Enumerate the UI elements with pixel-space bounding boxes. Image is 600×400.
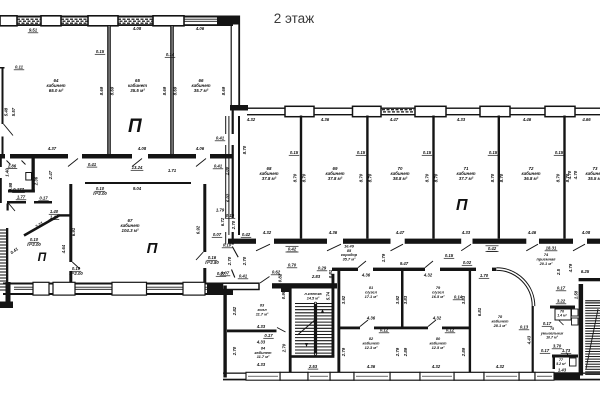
svg-text:8.70: 8.70 [359, 173, 364, 182]
svg-text:6.92: 6.92 [196, 225, 201, 234]
svg-text:11.7 м²: 11.7 м² [256, 312, 269, 317]
svg-text:1.40: 1.40 [50, 214, 59, 219]
svg-text:0.07: 0.07 [217, 271, 226, 276]
svg-text:4.37: 4.37 [47, 146, 57, 151]
svg-text:0.15: 0.15 [290, 150, 299, 155]
svg-text:0.14: 0.14 [166, 52, 175, 57]
svg-text:0.15: 0.15 [489, 150, 498, 155]
svg-text:2.70: 2.70 [232, 346, 237, 356]
svg-text:20.1 м²: 20.1 м² [539, 261, 554, 266]
svg-text:2.82: 2.82 [232, 306, 237, 316]
svg-text:11.7 м²: 11.7 м² [257, 354, 270, 359]
svg-text:0.42: 0.42 [288, 247, 297, 252]
svg-text:1.58: 1.58 [574, 290, 579, 299]
svg-text:2.36: 2.36 [34, 176, 39, 186]
svg-text:П: П [38, 250, 47, 264]
svg-text:4.32: 4.32 [246, 117, 256, 122]
svg-text:h=2.00: h=2.00 [69, 271, 83, 276]
svg-text:П: П [147, 240, 159, 257]
svg-text:2.79: 2.79 [341, 347, 346, 357]
svg-text:6.72: 6.72 [220, 217, 225, 226]
svg-text:3.22: 3.22 [557, 299, 566, 304]
svg-text:1.43: 1.43 [558, 368, 567, 373]
svg-text:0.15: 0.15 [555, 150, 564, 155]
svg-text:h=2.00: h=2.00 [93, 191, 107, 196]
svg-text:0.41: 0.41 [214, 164, 223, 169]
svg-text:17.1 м²: 17.1 м² [365, 294, 379, 299]
svg-text:35.5 м²: 35.5 м² [130, 88, 145, 93]
svg-text:0.11: 0.11 [15, 65, 24, 70]
svg-text:8.70: 8.70 [490, 173, 495, 182]
svg-text:18.31: 18.31 [546, 246, 557, 251]
svg-text:1.77: 1.77 [17, 195, 26, 200]
svg-text:0.17: 0.17 [541, 348, 550, 353]
svg-text:37.8 м²: 37.8 м² [262, 176, 277, 181]
svg-text:h=2.80: h=2.80 [205, 260, 219, 265]
svg-text:4.66: 4.66 [581, 117, 591, 122]
svg-text:1.73: 1.73 [562, 348, 571, 353]
svg-text:0.15: 0.15 [357, 150, 366, 155]
svg-text:3.83: 3.83 [403, 295, 408, 304]
svg-text:8.69: 8.69 [173, 86, 178, 95]
svg-text:9.47: 9.47 [400, 261, 409, 266]
svg-text:4.32: 4.32 [432, 316, 442, 321]
svg-text:2 этаж: 2 этаж [274, 11, 314, 26]
svg-text:8.70: 8.70 [302, 173, 307, 182]
svg-text:0.12: 0.12 [446, 328, 455, 333]
svg-text:4.36: 4.36 [328, 230, 338, 235]
svg-text:4.43: 4.43 [527, 335, 532, 345]
svg-text:0.15: 0.15 [96, 49, 105, 54]
svg-text:28.1 м²: 28.1 м² [493, 323, 508, 328]
svg-text:0.177: 0.177 [13, 187, 24, 192]
svg-text:0.13: 0.13 [520, 325, 529, 330]
svg-text:1.71: 1.71 [168, 168, 177, 173]
svg-text:4.06: 4.06 [195, 26, 205, 31]
svg-text:4.33: 4.33 [461, 230, 471, 235]
svg-text:4.33: 4.33 [256, 324, 266, 329]
svg-text:38.8 м²: 38.8 м² [393, 176, 408, 181]
svg-text:4.79: 4.79 [568, 263, 573, 273]
svg-text:0.17: 0.17 [39, 196, 48, 201]
svg-text:14.5 м²: 14.5 м² [307, 296, 320, 300]
svg-text:1.79: 1.79 [381, 253, 386, 262]
svg-text:П: П [456, 197, 468, 214]
svg-text:4.33: 4.33 [256, 340, 266, 345]
svg-text:5.57: 5.57 [11, 107, 16, 116]
svg-text:8.69: 8.69 [162, 86, 167, 95]
svg-text:0.17: 0.17 [557, 286, 566, 291]
svg-text:0.29: 0.29 [318, 266, 327, 271]
svg-text:37.7 м²: 37.7 м² [459, 176, 474, 181]
svg-text:0.07: 0.07 [213, 232, 222, 237]
svg-text:5.74: 5.74 [326, 291, 331, 300]
svg-text:2.70: 2.70 [282, 343, 287, 353]
svg-text:0.41: 0.41 [216, 136, 225, 141]
svg-text:4.46: 4.46 [522, 117, 532, 122]
svg-text:0.42: 0.42 [242, 232, 251, 237]
svg-text:2.89: 2.89 [461, 347, 466, 357]
svg-text:0.90: 0.90 [281, 290, 286, 299]
svg-text:1.40: 1.40 [50, 209, 59, 214]
svg-text:4.33: 4.33 [456, 117, 466, 122]
svg-text:4.32: 4.32 [495, 364, 505, 369]
svg-text:1.79: 1.79 [216, 208, 225, 213]
svg-text:4.70: 4.70 [567, 170, 572, 180]
svg-text:0.02: 0.02 [463, 260, 472, 265]
svg-text:8.69: 8.69 [99, 86, 104, 95]
svg-text:8.70: 8.70 [499, 173, 504, 182]
svg-text:12.3 м²: 12.3 м² [365, 345, 379, 350]
svg-text:2.70: 2.70 [231, 220, 236, 230]
svg-text:12.5 м²: 12.5 м² [432, 345, 446, 350]
svg-text:1.40: 1.40 [5, 168, 10, 177]
svg-text:35.7 м²: 35.7 м² [194, 88, 209, 93]
svg-text:4.08: 4.08 [581, 230, 591, 235]
svg-text:2.89: 2.89 [403, 347, 408, 357]
svg-text:9.04: 9.04 [133, 186, 142, 191]
svg-text:9.51: 9.51 [29, 28, 38, 33]
svg-text:6.81: 6.81 [477, 307, 482, 316]
svg-text:0.70: 0.70 [288, 263, 297, 268]
svg-text:2.53: 2.53 [308, 364, 318, 369]
svg-text:104.3 м²: 104.3 м² [122, 228, 139, 233]
svg-text:4.70: 4.70 [573, 170, 578, 180]
svg-text:3.92: 3.92 [395, 295, 400, 304]
svg-text:0.82: 0.82 [278, 273, 283, 282]
svg-text:4.08: 4.08 [132, 26, 142, 31]
svg-text:4.33: 4.33 [256, 362, 266, 367]
svg-text:8.69: 8.69 [110, 86, 115, 95]
svg-text:4.36: 4.36 [320, 117, 330, 122]
svg-text:0.12: 0.12 [380, 328, 389, 333]
svg-text:0.41: 0.41 [239, 274, 248, 279]
svg-text:5.48: 5.48 [4, 107, 9, 116]
svg-text:16.5 м²: 16.5 м² [432, 294, 446, 299]
svg-text:4.46: 4.46 [527, 230, 537, 235]
svg-text:0.62: 0.62 [272, 270, 281, 275]
svg-text:4.47: 4.47 [389, 117, 399, 122]
svg-text:4.08: 4.08 [137, 146, 147, 151]
svg-text:2.5: 2.5 [556, 268, 561, 276]
svg-text:h=2.00: h=2.00 [27, 242, 41, 247]
svg-text:8.70: 8.70 [556, 173, 561, 182]
svg-text:10.7 м²: 10.7 м² [546, 336, 559, 340]
svg-text:37.8 м²: 37.8 м² [328, 176, 343, 181]
svg-text:8.70: 8.70 [242, 145, 247, 154]
svg-text:П: П [128, 116, 142, 137]
svg-text:4.32: 4.32 [431, 364, 441, 369]
svg-text:65.0 м²: 65.0 м² [49, 88, 64, 93]
svg-text:36.8 м²: 36.8 м² [524, 176, 539, 181]
svg-text:6.02: 6.02 [226, 193, 231, 202]
svg-text:6.91: 6.91 [71, 227, 76, 236]
svg-text:35.5 м²: 35.5 м² [588, 176, 600, 181]
svg-text:2.70: 2.70 [242, 256, 247, 266]
svg-text:2.83: 2.83 [311, 274, 321, 279]
svg-text:4.36: 4.36 [366, 364, 376, 369]
svg-text:2.47: 2.47 [48, 170, 53, 180]
svg-text:4.47: 4.47 [395, 230, 405, 235]
svg-text:8.70: 8.70 [434, 173, 439, 182]
svg-text:8.69: 8.69 [221, 86, 226, 95]
svg-text:4.32: 4.32 [262, 230, 272, 235]
svg-text:35.7 м²: 35.7 м² [343, 256, 357, 261]
svg-text:1.4 м²: 1.4 м² [557, 314, 567, 318]
svg-text:2.86: 2.86 [7, 163, 17, 168]
svg-text:0.10: 0.10 [226, 213, 235, 218]
svg-text:0.14: 0.14 [454, 295, 463, 300]
svg-text:0.41: 0.41 [88, 162, 97, 167]
svg-text:4.32: 4.32 [423, 273, 433, 278]
svg-text:8.70: 8.70 [368, 173, 373, 182]
svg-text:4.06: 4.06 [195, 146, 205, 151]
svg-text:6.25: 6.25 [581, 269, 590, 274]
svg-text:0.17: 0.17 [543, 321, 552, 326]
svg-text:8.70: 8.70 [293, 173, 298, 182]
svg-text:4.64: 4.64 [61, 244, 66, 254]
svg-text:2.79: 2.79 [395, 347, 400, 357]
svg-text:л.клетка: л.клетка [303, 292, 321, 296]
svg-text:1.70: 1.70 [480, 273, 489, 278]
svg-text:8.70: 8.70 [425, 173, 430, 182]
svg-text:4.36: 4.36 [361, 273, 371, 278]
svg-text:0.15: 0.15 [423, 150, 432, 155]
svg-text:0.15: 0.15 [445, 253, 454, 258]
svg-text:2.70: 2.70 [227, 256, 232, 266]
svg-text:4.36: 4.36 [366, 316, 376, 321]
svg-text:0.42: 0.42 [488, 246, 497, 251]
svg-text:3.70: 3.70 [553, 344, 562, 349]
svg-text:13.24: 13.24 [132, 165, 143, 170]
svg-text:3.92: 3.92 [341, 295, 346, 304]
svg-text:5.2 м²: 5.2 м² [556, 362, 566, 366]
svg-text:0.17: 0.17 [264, 333, 273, 338]
